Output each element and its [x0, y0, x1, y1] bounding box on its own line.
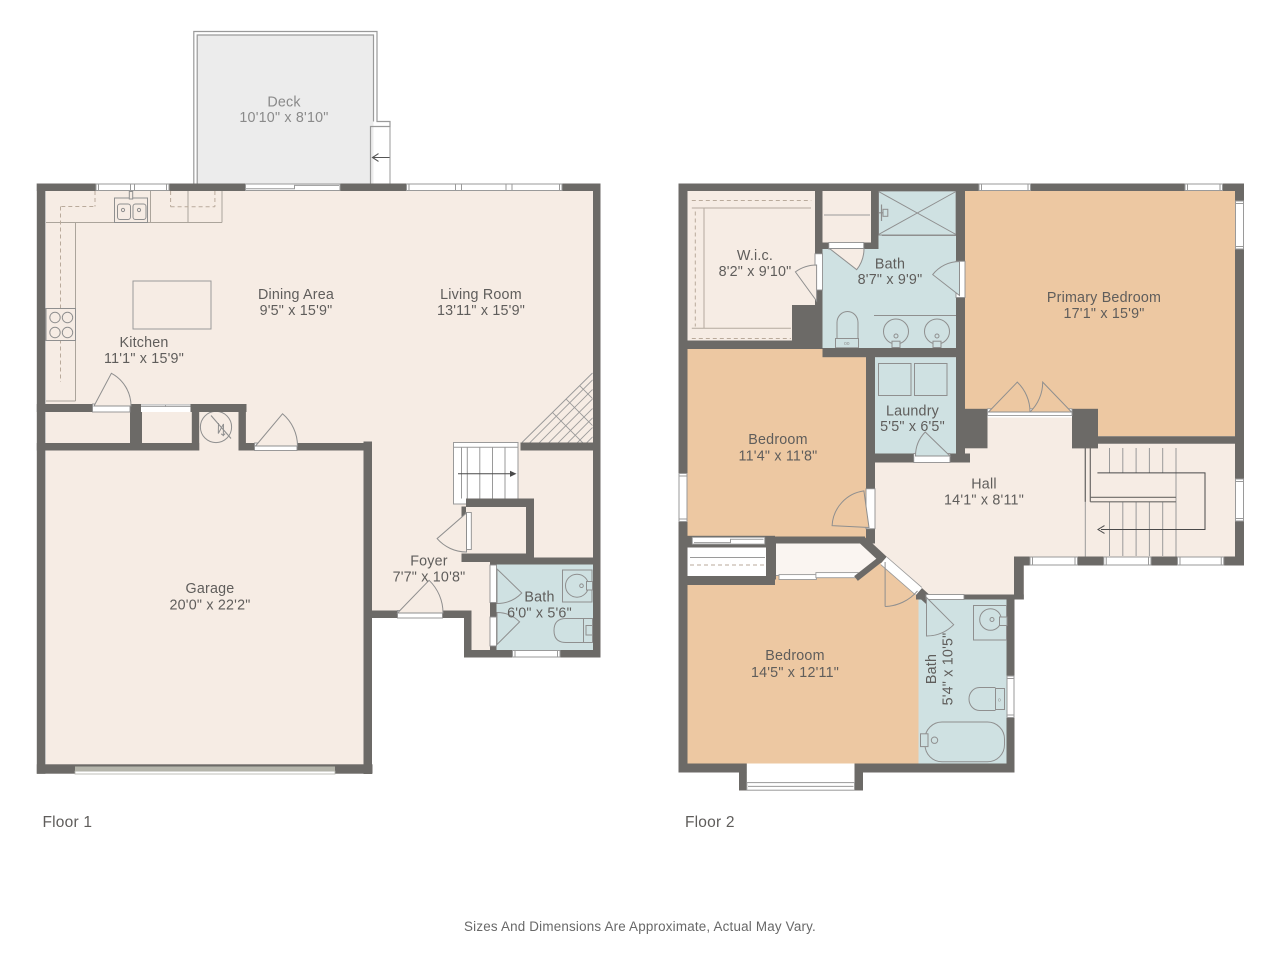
svg-text:Sizes And Dimensions Are Appro: Sizes And Dimensions Are Approximate, Ac… — [464, 919, 816, 934]
svg-text:Bedroom: Bedroom — [765, 648, 824, 664]
svg-text:14'1" x 8'11": 14'1" x 8'11" — [944, 493, 1024, 509]
svg-text:5'5" x 6'5": 5'5" x 6'5" — [880, 419, 945, 435]
svg-text:7'7" x 10'8": 7'7" x 10'8" — [393, 570, 466, 586]
svg-text:Bath: Bath — [875, 257, 905, 273]
svg-text:10'10" x 8'10": 10'10" x 8'10" — [239, 110, 328, 126]
svg-text:oo: oo — [844, 341, 850, 347]
svg-text:11'4" x 11'8": 11'4" x 11'8" — [739, 449, 818, 465]
svg-text:Kitchen: Kitchen — [119, 335, 168, 351]
svg-text:13'11" x 15'9": 13'11" x 15'9" — [437, 303, 525, 319]
svg-text:W.i.c.: W.i.c. — [737, 248, 773, 264]
svg-text:11'1" x 15'9": 11'1" x 15'9" — [104, 351, 184, 367]
svg-text:Living Room: Living Room — [440, 287, 522, 303]
svg-text:20'0" x 22'2": 20'0" x 22'2" — [169, 598, 250, 614]
svg-text:Floor 1: Floor 1 — [43, 814, 93, 831]
svg-text:Bath: Bath — [924, 654, 940, 684]
svg-text:Deck: Deck — [267, 95, 301, 111]
svg-text:Bedroom: Bedroom — [748, 432, 807, 448]
svg-text:Laundry: Laundry — [886, 404, 940, 420]
svg-text:8'7" x 9'9": 8'7" x 9'9" — [858, 272, 923, 288]
svg-text:Garage: Garage — [186, 581, 235, 597]
svg-text:6'0" x 5'6": 6'0" x 5'6" — [507, 606, 572, 622]
svg-text:o: o — [998, 698, 1001, 704]
svg-text:17'1" x 15'9": 17'1" x 15'9" — [1063, 306, 1144, 322]
svg-text:8'2" x 9'10": 8'2" x 9'10" — [719, 264, 792, 280]
svg-text:14'5" x 12'11": 14'5" x 12'11" — [751, 665, 839, 681]
svg-text:Primary Bedroom: Primary Bedroom — [1047, 290, 1161, 306]
svg-text:Foyer: Foyer — [410, 554, 448, 570]
svg-text:Floor 2: Floor 2 — [685, 814, 735, 831]
svg-text:Hall: Hall — [971, 477, 996, 493]
svg-text:Bath: Bath — [524, 590, 554, 606]
svg-text:5'4" x 10'5": 5'4" x 10'5" — [941, 633, 957, 706]
svg-text:9'5" x 15'9": 9'5" x 15'9" — [260, 303, 333, 319]
svg-text:Dining Area: Dining Area — [258, 287, 334, 303]
